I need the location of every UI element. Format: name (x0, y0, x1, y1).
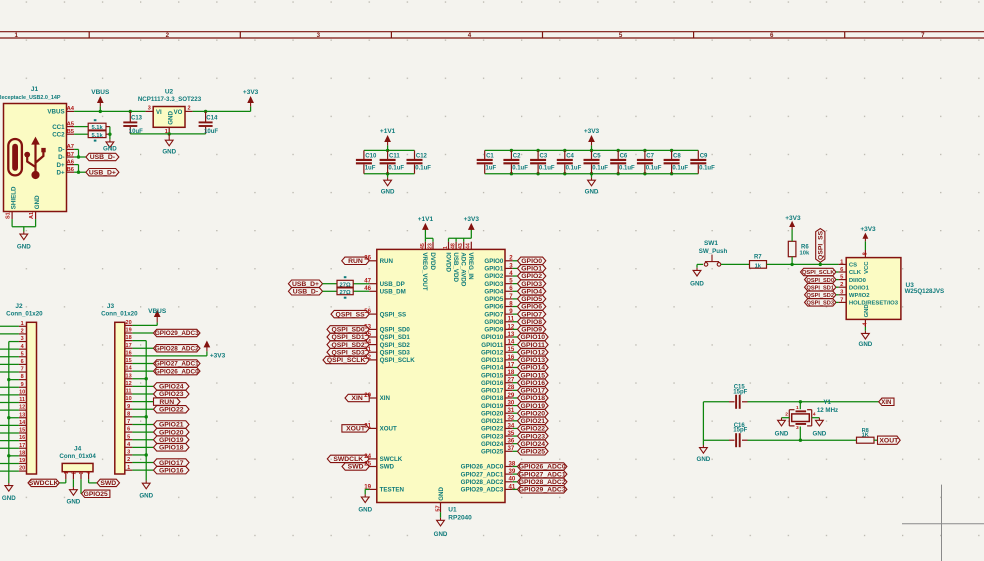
svg-text:GPIO19: GPIO19 (159, 437, 184, 444)
svg-text:QSPI_SCLK: QSPI_SCLK (380, 357, 416, 364)
svg-text:16: 16 (19, 435, 25, 441)
svg-text:D+: D+ (57, 169, 65, 176)
svg-text:45: 45 (420, 243, 426, 249)
svg-text:GND: GND (775, 431, 789, 438)
svg-text:GND: GND (17, 243, 31, 250)
svg-text:GND: GND (434, 531, 448, 538)
svg-text:GPIO17: GPIO17 (159, 460, 184, 467)
svg-text:1: 1 (14, 32, 18, 39)
svg-text:2: 2 (127, 457, 130, 463)
svg-text:0.1uF: 0.1uF (512, 166, 528, 172)
svg-text:GPIO17: GPIO17 (521, 388, 546, 395)
svg-text:GPIO10: GPIO10 (481, 334, 504, 341)
svg-text:10k: 10k (800, 251, 810, 257)
svg-text:C11: C11 (389, 154, 400, 160)
svg-text:XOUT: XOUT (380, 426, 397, 433)
svg-text:A7: A7 (67, 144, 74, 150)
svg-text:2: 2 (785, 412, 788, 418)
svg-text:GPIO4: GPIO4 (521, 288, 542, 295)
svg-text:2: 2 (166, 32, 170, 39)
svg-text:GPIO9: GPIO9 (484, 327, 503, 334)
svg-text:GND: GND (167, 111, 174, 125)
svg-text:18: 18 (126, 335, 132, 341)
svg-text:GPIO15: GPIO15 (521, 372, 546, 379)
svg-text:C3: C3 (540, 154, 548, 160)
svg-text:CS: CS (849, 263, 857, 269)
svg-text:17: 17 (126, 343, 132, 349)
svg-text:12 MHz: 12 MHz (817, 407, 838, 414)
svg-text:SW_Push: SW_Push (699, 248, 728, 255)
svg-text:0.1uF: 0.1uF (539, 166, 555, 172)
svg-text:GPIO25: GPIO25 (84, 491, 108, 498)
svg-text:VBUS: VBUS (47, 109, 64, 116)
svg-text:9: 9 (127, 404, 130, 410)
svg-text:7: 7 (127, 419, 130, 425)
svg-text:USB_DP: USB_DP (380, 281, 405, 288)
svg-text:CC1: CC1 (52, 124, 65, 131)
svg-text:U2: U2 (165, 88, 174, 95)
svg-text:GPIO14: GPIO14 (481, 365, 504, 372)
svg-text:GPIO22: GPIO22 (481, 426, 504, 433)
svg-text:GPIO5: GPIO5 (484, 296, 503, 303)
svg-text:0.1uF: 0.1uF (672, 166, 688, 172)
svg-text:14: 14 (126, 366, 133, 372)
svg-text:GND: GND (103, 146, 117, 153)
svg-text:GPIO25: GPIO25 (481, 449, 504, 456)
svg-text:QSPI_SD1: QSPI_SD1 (331, 334, 364, 341)
svg-text:QSPI_SCLK: QSPI_SCLK (327, 357, 366, 364)
svg-text:GPIO21: GPIO21 (159, 422, 184, 429)
svg-text:B5: B5 (67, 129, 75, 135)
svg-text:55: 55 (364, 331, 371, 338)
svg-text:+1V1: +1V1 (418, 216, 434, 223)
svg-text:GPIO24: GPIO24 (159, 384, 184, 391)
svg-text:USB_D+: USB_D+ (292, 281, 319, 288)
svg-text:0.1uF: 0.1uF (699, 166, 715, 172)
svg-text:VO: VO (174, 110, 183, 116)
svg-text:52: 52 (364, 354, 371, 361)
svg-text:D-: D- (58, 154, 65, 161)
svg-text:GND: GND (438, 487, 445, 501)
svg-text:GPIO29_ADC3: GPIO29_ADC3 (519, 487, 566, 494)
svg-text:Conn_01x04: Conn_01x04 (59, 453, 96, 460)
svg-text:VI: VI (156, 110, 162, 116)
svg-text:QSPI_SD3: QSPI_SD3 (380, 349, 411, 356)
svg-text:C13: C13 (131, 116, 143, 122)
svg-text:1uF: 1uF (365, 166, 376, 172)
svg-text:SHIELD: SHIELD (10, 186, 17, 209)
svg-text:VREG_VOUT: VREG_VOUT (421, 252, 428, 290)
svg-text:C14: C14 (206, 116, 218, 122)
svg-text:25: 25 (364, 460, 371, 467)
svg-text:GPIO26_ADC0: GPIO26_ADC0 (461, 464, 504, 471)
svg-text:53: 53 (364, 323, 371, 330)
svg-text:GPIO0: GPIO0 (484, 258, 503, 265)
svg-text:VCC: VCC (864, 261, 870, 274)
svg-text:SWDCLK: SWDCLK (29, 480, 59, 487)
svg-text:10uF: 10uF (204, 129, 218, 135)
svg-text:GPIO29_ADC3: GPIO29_ADC3 (461, 487, 504, 494)
svg-text:R7: R7 (754, 255, 762, 261)
svg-text:GPIO24: GPIO24 (481, 441, 504, 448)
svg-text:0.1uF: 0.1uF (388, 166, 404, 172)
svg-text:RUN: RUN (348, 258, 363, 265)
svg-text:GPIO23: GPIO23 (159, 391, 184, 398)
svg-text:SW1: SW1 (704, 240, 718, 247)
svg-text:GPIO2: GPIO2 (521, 273, 542, 280)
svg-text:XIN: XIN (881, 400, 891, 406)
svg-text:GPIO1: GPIO1 (521, 266, 542, 273)
svg-text:SWDCLK: SWDCLK (333, 456, 363, 463)
svg-text:C7: C7 (646, 154, 654, 160)
svg-text:J4: J4 (74, 445, 82, 452)
svg-text:ADC_AVDD: ADC_AVDD (460, 252, 467, 286)
svg-text:15: 15 (19, 428, 25, 434)
svg-text:+3V3: +3V3 (464, 216, 480, 223)
svg-text:QSPI_SD1: QSPI_SD1 (806, 285, 834, 291)
svg-text:GPIO28_ADC2: GPIO28_ADC2 (155, 345, 199, 352)
svg-text:GPIO7: GPIO7 (521, 311, 542, 318)
svg-text:DO/IO1: DO/IO1 (849, 285, 870, 291)
svg-text:15: 15 (126, 358, 132, 364)
svg-text:GPIO22: GPIO22 (159, 406, 184, 413)
svg-text:A4: A4 (67, 106, 75, 112)
svg-text:6: 6 (770, 32, 774, 39)
svg-text:27Ω: 27Ω (340, 290, 351, 296)
svg-text:1: 1 (64, 471, 70, 474)
svg-text:GPIO20: GPIO20 (159, 429, 184, 436)
svg-text:6: 6 (127, 427, 130, 433)
svg-text:C6: C6 (620, 154, 628, 160)
svg-text:GPIO29_ADC3: GPIO29_ADC3 (155, 330, 199, 337)
svg-text:14: 14 (19, 420, 26, 426)
svg-text:1: 1 (127, 465, 130, 471)
svg-text:5: 5 (619, 32, 623, 39)
svg-text:J3: J3 (107, 303, 115, 310)
svg-text:GPIO23: GPIO23 (521, 433, 546, 440)
svg-text:D-: D- (58, 147, 65, 154)
svg-text:GPIO11: GPIO11 (481, 342, 504, 349)
svg-text:GND: GND (690, 280, 704, 287)
svg-text:GPIO21: GPIO21 (521, 418, 546, 425)
svg-text:12: 12 (19, 405, 25, 411)
svg-text:5: 5 (127, 434, 130, 440)
svg-text:1k: 1k (755, 263, 762, 269)
svg-text:GND: GND (67, 498, 81, 505)
svg-text:GND: GND (381, 188, 395, 195)
svg-text:1uF: 1uF (486, 166, 497, 172)
svg-text:0.1uF: 0.1uF (566, 166, 582, 172)
svg-text:GPIO27_ADC1: GPIO27_ADC1 (461, 471, 504, 478)
svg-text:0.1uF: 0.1uF (592, 166, 608, 172)
svg-text:QSPI_SD2: QSPI_SD2 (331, 342, 364, 349)
svg-text:GPIO17: GPIO17 (481, 388, 504, 395)
svg-text:CC2: CC2 (52, 131, 65, 138)
svg-text:SWD: SWD (348, 464, 364, 471)
svg-text:+3V3: +3V3 (210, 353, 226, 360)
svg-text:13: 13 (126, 373, 132, 379)
svg-text:GPIO19: GPIO19 (481, 403, 504, 410)
svg-text:B6: B6 (67, 167, 75, 173)
svg-text:GPIO14: GPIO14 (521, 365, 546, 372)
svg-text:21: 21 (364, 422, 371, 429)
svg-text:GND: GND (139, 492, 153, 499)
svg-text:8: 8 (21, 374, 24, 380)
svg-text:GPIO20: GPIO20 (481, 410, 504, 417)
svg-text:QSPI_SD3: QSPI_SD3 (331, 349, 364, 356)
svg-text:GPIO12: GPIO12 (521, 349, 546, 356)
svg-text:2: 2 (187, 105, 190, 111)
svg-text:RUN: RUN (159, 399, 174, 406)
svg-text:2: 2 (71, 471, 77, 474)
svg-text:QSPI_SS: QSPI_SS (336, 311, 366, 318)
svg-text:GPIO6: GPIO6 (521, 304, 542, 311)
svg-text:B7: B7 (67, 152, 74, 158)
svg-text:19: 19 (19, 458, 25, 464)
svg-text:QSPI_SS: QSPI_SS (818, 230, 825, 260)
svg-text:GPIO18: GPIO18 (159, 445, 184, 452)
svg-text:GPIO18: GPIO18 (521, 395, 546, 402)
svg-text:USB_D+: USB_D+ (89, 169, 116, 176)
svg-text:6: 6 (21, 359, 24, 365)
svg-text:48: 48 (451, 243, 457, 249)
svg-text:10: 10 (19, 389, 25, 395)
svg-text:10: 10 (126, 396, 132, 402)
svg-text:USB_D-: USB_D- (90, 154, 115, 161)
svg-text:IOVDD: IOVDD (444, 252, 451, 272)
svg-text:QSPI_SD2: QSPI_SD2 (380, 342, 411, 349)
svg-text:SWCLK: SWCLK (380, 456, 403, 463)
svg-text:+3V3: +3V3 (243, 89, 259, 96)
svg-text:15pF: 15pF (733, 428, 747, 434)
svg-text:VBUS: VBUS (148, 308, 167, 315)
svg-text:C5: C5 (593, 154, 601, 160)
svg-text:13: 13 (19, 412, 25, 418)
svg-text:QSPI_SD0: QSPI_SD0 (806, 278, 834, 284)
svg-text:Conn_01x20: Conn_01x20 (101, 310, 138, 317)
svg-text:GND: GND (358, 506, 372, 513)
svg-text:20: 20 (126, 320, 132, 326)
svg-text:QSPI_SD1: QSPI_SD1 (380, 334, 411, 341)
svg-text:GPIO3: GPIO3 (521, 281, 542, 288)
svg-text:0.1uF: 0.1uF (415, 166, 431, 172)
svg-text:VBUS: VBUS (91, 89, 110, 96)
svg-text:GPIO7: GPIO7 (484, 311, 503, 318)
svg-text:20: 20 (364, 392, 371, 399)
svg-text:11: 11 (19, 397, 25, 403)
svg-text:C2: C2 (513, 154, 521, 160)
svg-text:4: 4 (87, 471, 93, 474)
svg-text:2: 2 (21, 329, 24, 335)
svg-text:TESTEN: TESTEN (380, 487, 405, 494)
svg-text:USB_VDD: USB_VDD (452, 252, 459, 282)
svg-text:GPIO0: GPIO0 (521, 258, 542, 265)
svg-text:51: 51 (364, 346, 371, 353)
svg-text:5: 5 (21, 351, 24, 357)
svg-text:GPIO9: GPIO9 (521, 327, 542, 334)
svg-text:XIN: XIN (351, 395, 362, 402)
svg-text:16: 16 (126, 350, 132, 356)
svg-text:QSPI_SD3: QSPI_SD3 (806, 301, 834, 307)
svg-text:GPIO13: GPIO13 (521, 357, 546, 364)
svg-text:HOLD/RESET/IO3: HOLD/RESET/IO3 (849, 301, 899, 307)
svg-text:23: 23 (427, 243, 433, 249)
svg-text:3: 3 (21, 336, 24, 342)
svg-text:QSPI_SS: QSPI_SS (380, 311, 406, 318)
svg-text:GPIO16: GPIO16 (521, 380, 546, 387)
svg-text:C8: C8 (673, 154, 681, 160)
svg-text:GND: GND (813, 431, 827, 438)
svg-text:GPIO25: GPIO25 (521, 449, 546, 456)
svg-text:54: 54 (364, 339, 371, 346)
svg-text:GND: GND (2, 495, 16, 502)
svg-text:C12: C12 (416, 154, 428, 160)
svg-text:GND: GND (162, 149, 176, 156)
svg-text:SWD: SWD (100, 480, 116, 487)
svg-text:C9: C9 (700, 154, 708, 160)
svg-text:4: 4 (813, 412, 816, 418)
svg-text:RP2040: RP2040 (448, 515, 472, 522)
svg-text:GPIO12: GPIO12 (481, 349, 504, 356)
svg-text:XIN: XIN (380, 395, 391, 402)
svg-text:W25Q128JVS: W25Q128JVS (905, 288, 945, 295)
svg-text:5.1k: 5.1k (91, 133, 103, 139)
svg-text:1: 1 (21, 321, 24, 327)
svg-text:NCP1117-3.3_SOT223: NCP1117-3.3_SOT223 (138, 96, 202, 103)
svg-text:U1: U1 (448, 506, 457, 513)
svg-text:USB_C_Receptacle_USB2.0_14P: USB_C_Receptacle_USB2.0_14P (0, 95, 61, 101)
svg-text:J2: J2 (15, 303, 23, 310)
svg-text:WP/IO2: WP/IO2 (849, 293, 870, 299)
svg-text:GPIO22: GPIO22 (521, 426, 546, 433)
svg-text:GND: GND (697, 456, 711, 463)
svg-text:C1: C1 (486, 154, 494, 160)
svg-text:27Ω: 27Ω (340, 282, 351, 288)
svg-text:QSPI_SD2: QSPI_SD2 (806, 293, 834, 299)
svg-text:3: 3 (148, 105, 151, 111)
svg-text:3: 3 (796, 425, 799, 431)
svg-text:C4: C4 (566, 154, 574, 160)
svg-text:XOUT: XOUT (879, 437, 899, 444)
svg-text:Y1: Y1 (823, 399, 831, 406)
svg-text:4: 4 (468, 32, 472, 39)
svg-text:0.1uF: 0.1uF (619, 166, 635, 172)
svg-text:GPIO26_ADC0: GPIO26_ADC0 (519, 464, 566, 471)
svg-text:24: 24 (364, 453, 371, 460)
svg-text:SWD: SWD (380, 464, 395, 471)
svg-text:+3V3: +3V3 (584, 128, 600, 135)
svg-text:3: 3 (317, 32, 321, 39)
svg-text:GPIO13: GPIO13 (481, 357, 504, 364)
svg-text:GPIO16: GPIO16 (481, 380, 504, 387)
svg-text:26: 26 (364, 255, 371, 262)
svg-text:RUN: RUN (380, 258, 394, 265)
svg-text:GPIO20: GPIO20 (521, 410, 546, 417)
svg-text:+3V3: +3V3 (785, 215, 801, 222)
svg-text:QSPI_SD0: QSPI_SD0 (331, 327, 364, 334)
svg-text:GPIO8: GPIO8 (484, 319, 503, 326)
svg-text:12: 12 (126, 381, 132, 387)
svg-text:0.1uF: 0.1uF (646, 166, 662, 172)
svg-text:XOUT: XOUT (346, 426, 366, 433)
svg-text:20: 20 (19, 466, 25, 472)
svg-text:GND: GND (864, 304, 870, 317)
svg-text:8: 8 (127, 411, 130, 417)
svg-text:CLK: CLK (849, 270, 862, 276)
svg-text:GPIO27_ADC1: GPIO27_ADC1 (155, 361, 199, 368)
svg-text:GND: GND (585, 188, 599, 195)
svg-text:1: 1 (796, 405, 799, 411)
svg-text:A6: A6 (67, 159, 75, 165)
svg-text:GPIO6: GPIO6 (484, 304, 503, 311)
svg-text:3: 3 (127, 450, 130, 456)
svg-text:GPIO27_ADC1: GPIO27_ADC1 (519, 471, 566, 478)
svg-text:GPIO5: GPIO5 (521, 296, 542, 303)
svg-text:GPIO2: GPIO2 (484, 273, 503, 280)
svg-text:A5: A5 (67, 121, 75, 127)
svg-text:D+: D+ (57, 162, 65, 169)
svg-text:+3V3: +3V3 (860, 226, 876, 233)
svg-text:GPIO18: GPIO18 (481, 395, 504, 402)
svg-text:GPIO4: GPIO4 (484, 288, 503, 295)
svg-text:DI/IO0: DI/IO0 (849, 278, 867, 284)
svg-text:VREG_IN: VREG_IN (467, 252, 474, 280)
svg-text:56: 56 (364, 308, 371, 315)
svg-text:8: 8 (863, 252, 869, 255)
svg-text:1K: 1K (862, 432, 869, 438)
svg-text:S1: S1 (5, 212, 11, 219)
svg-text:9: 9 (21, 382, 24, 388)
svg-text:GPIO10: GPIO10 (521, 334, 546, 341)
svg-text:GPIO3: GPIO3 (484, 281, 503, 288)
svg-text:57: 57 (436, 505, 442, 511)
svg-text:GPIO11: GPIO11 (521, 342, 545, 349)
svg-text:USB_DM: USB_DM (380, 289, 406, 296)
svg-text:USB_D-: USB_D- (293, 289, 318, 296)
svg-text:GPIO23: GPIO23 (481, 433, 504, 440)
svg-text:44: 44 (466, 243, 472, 249)
svg-text:1: 1 (443, 246, 449, 249)
svg-text:GPIO19: GPIO19 (521, 403, 546, 410)
svg-text:QSPI_SD0: QSPI_SD0 (380, 327, 411, 334)
svg-text:+1V1: +1V1 (380, 128, 396, 135)
svg-text:GPIO8: GPIO8 (521, 319, 542, 326)
svg-text:7: 7 (921, 32, 925, 39)
svg-text:19: 19 (126, 328, 132, 334)
svg-text:3: 3 (79, 471, 85, 474)
svg-text:17: 17 (19, 443, 25, 449)
svg-text:A1: A1 (29, 212, 35, 219)
svg-text:7: 7 (21, 367, 24, 373)
svg-text:43: 43 (458, 243, 464, 249)
svg-text:QSPI_SCLK: QSPI_SCLK (802, 270, 835, 276)
svg-text:15pF: 15pF (733, 390, 747, 396)
svg-text:11: 11 (126, 389, 132, 395)
svg-text:GPIO15: GPIO15 (481, 372, 504, 379)
svg-text:GPIO1: GPIO1 (484, 266, 503, 273)
svg-text:GPIO28_ADC2: GPIO28_ADC2 (519, 479, 566, 486)
svg-text:GND: GND (859, 341, 873, 348)
svg-text:18: 18 (19, 450, 25, 456)
svg-text:GPIO24: GPIO24 (521, 441, 546, 448)
svg-text:GPIO26_ADC0: GPIO26_ADC0 (155, 368, 199, 375)
svg-text:DVDD: DVDD (429, 252, 436, 270)
svg-text:GPIO16: GPIO16 (159, 467, 184, 474)
svg-text:GND: GND (34, 195, 41, 209)
svg-text:Conn_01x20: Conn_01x20 (6, 310, 43, 317)
svg-text:GPIO28_ADC2: GPIO28_ADC2 (461, 479, 504, 486)
svg-text:GPIO21: GPIO21 (481, 418, 504, 425)
